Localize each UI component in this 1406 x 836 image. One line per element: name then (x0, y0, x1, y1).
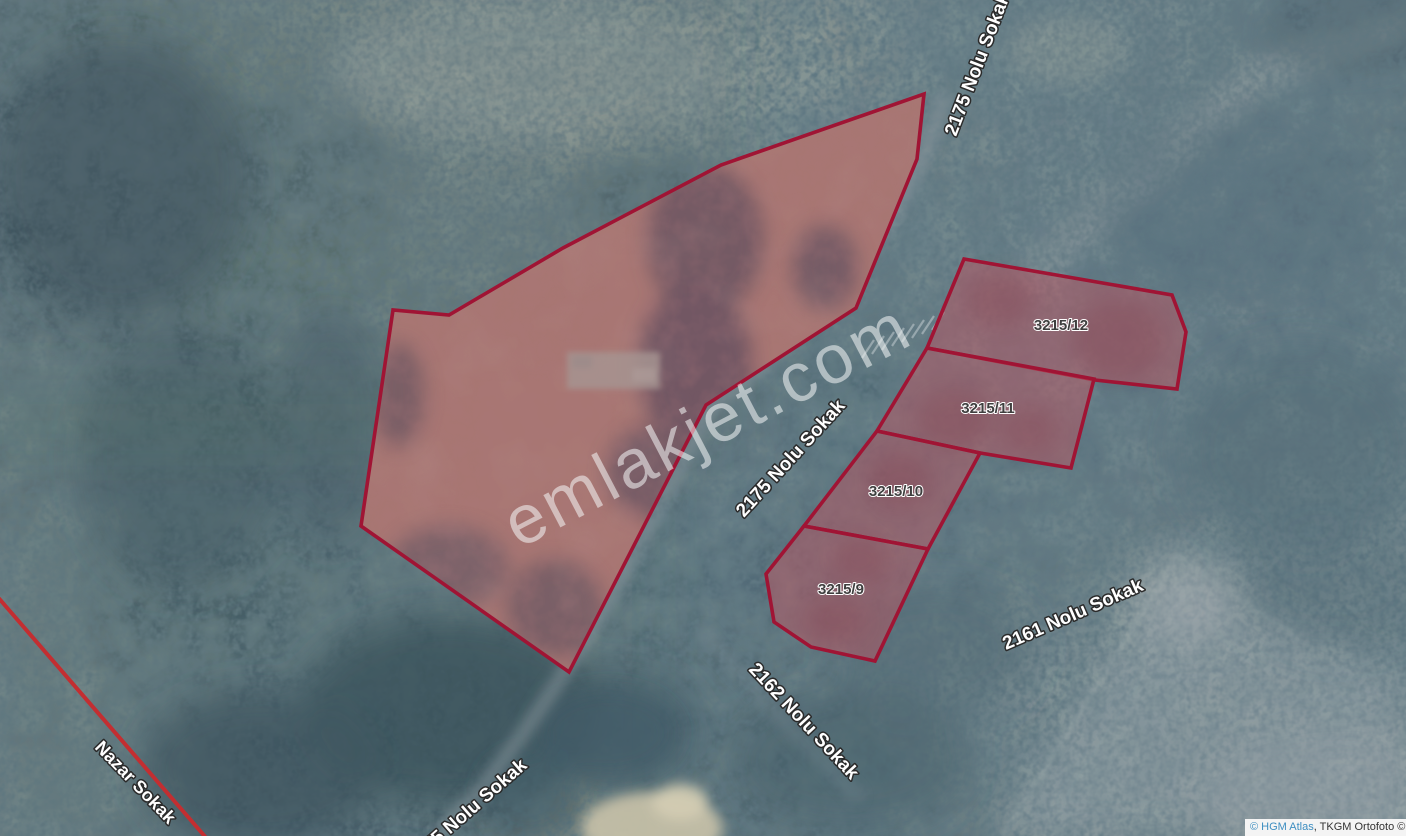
svg-text:3215/10: 3215/10 (869, 483, 923, 500)
svg-text:3215/12: 3215/12 (1034, 317, 1088, 334)
svg-text:3215/9: 3215/9 (818, 581, 864, 598)
svg-text:3215/11: 3215/11 (961, 400, 1014, 417)
